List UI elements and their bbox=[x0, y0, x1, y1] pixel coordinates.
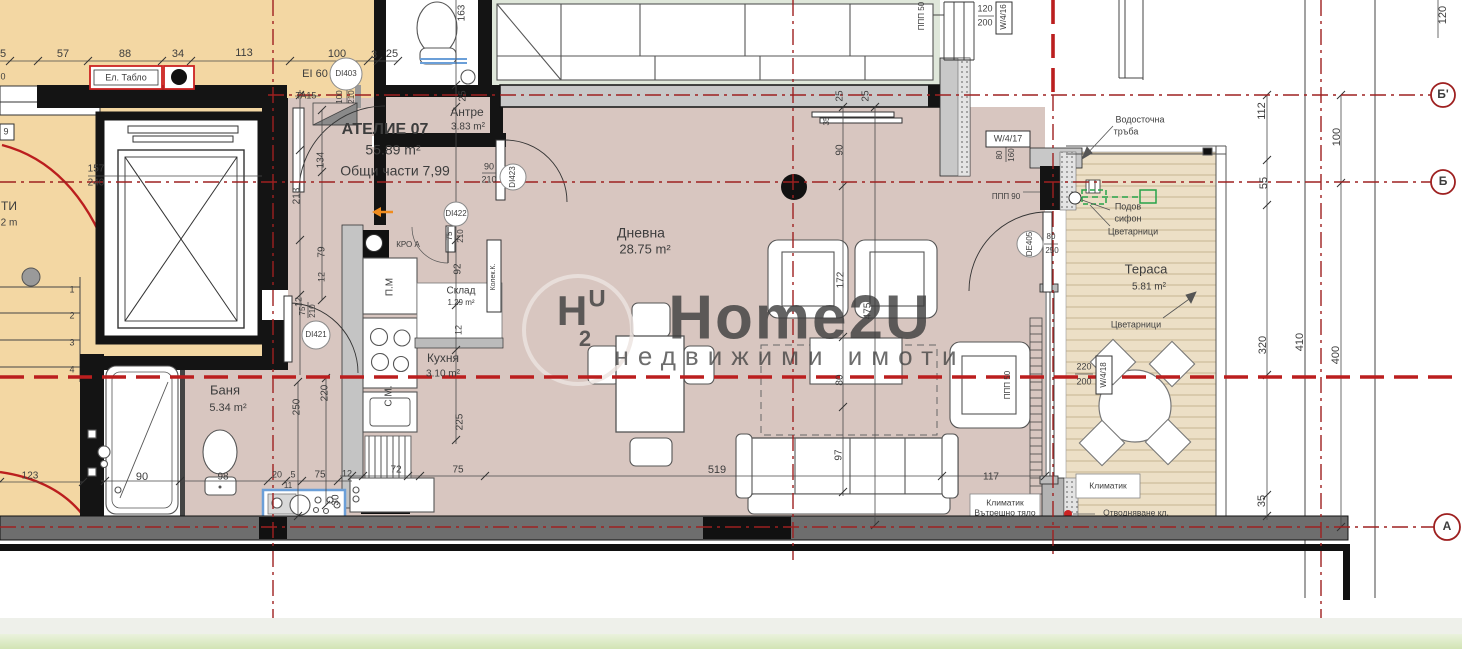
label-dim: 113 bbox=[235, 47, 253, 59]
label-dim: 240 bbox=[88, 178, 105, 189]
label-dim: 75 bbox=[314, 470, 326, 481]
dining-chair bbox=[630, 438, 672, 466]
label-dim: 210 bbox=[308, 304, 317, 318]
label-annotation: сифон bbox=[1115, 213, 1142, 223]
label-room-name: Тераса bbox=[1125, 261, 1168, 276]
label-annotation: Вътрешно тяло bbox=[974, 507, 1035, 517]
label-room-area: 1.29 m² bbox=[447, 298, 474, 307]
bathroom-cabinet bbox=[350, 478, 434, 512]
label-dim: 35 bbox=[1256, 495, 1268, 507]
label-dim: 75 bbox=[452, 465, 464, 476]
label-dim: 88 bbox=[119, 48, 131, 60]
label-annotation: ППП 90 bbox=[992, 192, 1021, 201]
label-annotation: КРО А bbox=[396, 240, 420, 249]
label-dim: 410 bbox=[1294, 333, 1306, 351]
label-dim: 320 bbox=[1257, 336, 1269, 354]
label-dim: 72 bbox=[390, 465, 402, 476]
label-dim: 25 bbox=[835, 90, 846, 102]
label-dim: 90 bbox=[835, 144, 846, 156]
label-dim: 5 bbox=[0, 48, 6, 60]
label-watermark: U bbox=[588, 285, 605, 312]
floor-plan-canvas: 5578834113100325016325252535901724758097… bbox=[0, 0, 1462, 649]
label-dim: 160 bbox=[1007, 148, 1016, 162]
label-door-tag: DI421 bbox=[305, 330, 327, 339]
label-dim: 220 bbox=[1076, 361, 1091, 371]
label-door-tag: DI403 bbox=[335, 69, 357, 78]
stair-post bbox=[22, 268, 40, 286]
label-annotation: ППП 50 bbox=[917, 1, 926, 30]
label-room-name: Антре bbox=[450, 105, 484, 119]
label-unit-common: Общи части 7,99 bbox=[340, 163, 450, 179]
label-dim: 117 bbox=[983, 472, 999, 483]
label-dim: 55 bbox=[1258, 177, 1270, 189]
label-annotation: С.М. bbox=[384, 385, 395, 406]
label-door-tag: DI423 bbox=[508, 166, 517, 188]
label-dim: 34 bbox=[172, 48, 184, 60]
label-annotation: ППП 50 bbox=[1003, 370, 1012, 399]
structural-column bbox=[781, 174, 807, 200]
label-annotation: Водосточна bbox=[1115, 114, 1164, 124]
label-axis-marker: Б bbox=[1439, 174, 1448, 188]
label-annotation: Цветарници bbox=[1111, 319, 1161, 329]
label-watermark: недвижими имоти bbox=[614, 341, 965, 371]
label-door-tag: TA15 bbox=[296, 90, 317, 100]
label-window-tag: W/4/16 bbox=[999, 4, 1008, 30]
label-dim: 12 bbox=[342, 468, 352, 478]
toilet bbox=[203, 430, 237, 495]
label-dim: 80 bbox=[835, 374, 846, 386]
wall-top-band bbox=[500, 85, 940, 107]
label-axis-marker: А bbox=[1443, 519, 1452, 533]
label-dim: 200 bbox=[1076, 376, 1091, 386]
label-dim: 4 bbox=[69, 364, 74, 374]
bottom-strip-green bbox=[0, 634, 1462, 649]
label-dim: 75 bbox=[298, 306, 307, 315]
label-dim: 210 bbox=[347, 90, 356, 104]
label-annotation: Отводняване кл. bbox=[1103, 507, 1169, 517]
label-annotation: Колек.К. bbox=[490, 264, 497, 291]
label-dim: 25 bbox=[386, 48, 398, 60]
label-dim: 92 bbox=[453, 263, 464, 275]
label-room-name: ТИ bbox=[1, 199, 17, 213]
label-dim: 213 bbox=[292, 187, 303, 204]
label-room-name: Кухня bbox=[427, 351, 459, 365]
label-dim: 120 bbox=[1437, 6, 1449, 24]
label-dim: 30 bbox=[331, 494, 342, 506]
bottom-strip-light bbox=[0, 618, 1462, 634]
label-dim: 90 bbox=[136, 471, 148, 483]
bottom-wall-band bbox=[0, 516, 1350, 600]
sofa bbox=[736, 434, 958, 514]
label-annotation: Цветарници bbox=[1108, 226, 1158, 236]
label-dim: 12 bbox=[316, 272, 326, 282]
label-dim: 210 bbox=[481, 174, 496, 184]
label-dim: 25 bbox=[458, 90, 469, 102]
label-dim: 100 bbox=[328, 48, 346, 60]
label-dim: 123 bbox=[22, 471, 39, 482]
panel-knob-icon bbox=[171, 69, 187, 85]
label-room-area: 28.75 m² bbox=[619, 241, 671, 256]
label-annotation: П.М bbox=[385, 278, 396, 296]
label-room-name: Баня bbox=[210, 382, 240, 397]
label-unit-name: АТЕЛИЕ 07 bbox=[342, 121, 429, 138]
label-door-tag: DE405 bbox=[1025, 231, 1034, 256]
label-room-area: 2 m bbox=[1, 218, 18, 229]
label-dim: 519 bbox=[708, 464, 726, 476]
label-dim: 112 bbox=[1256, 102, 1268, 120]
label-dim: 5 bbox=[290, 469, 295, 479]
dining-chair bbox=[632, 303, 670, 337]
label-dim: 3 bbox=[69, 337, 74, 347]
label-annotation: Климатик bbox=[986, 497, 1024, 507]
label-dim: 400 bbox=[1330, 346, 1342, 364]
label-dim: 75 bbox=[445, 231, 454, 240]
label-dim: 100 bbox=[335, 90, 344, 104]
label-dim: 80 bbox=[1047, 232, 1056, 241]
label-window-tag: W/4/17 bbox=[994, 133, 1023, 143]
label-annotation: Климатик bbox=[1089, 480, 1127, 490]
kitchen-partition bbox=[342, 225, 363, 508]
label-annotation: EI 60 bbox=[302, 68, 328, 80]
label-dim: 225 bbox=[455, 413, 466, 430]
label-dim: 100 bbox=[1331, 128, 1343, 146]
label-annotation: тръба bbox=[1114, 126, 1139, 136]
label-dim: 20 bbox=[272, 469, 282, 479]
label-dim: 57 bbox=[57, 48, 69, 60]
label-dim: 90 bbox=[484, 161, 494, 171]
label-dim: 200 bbox=[977, 17, 992, 27]
label-dim: 157 bbox=[88, 164, 105, 175]
label-dim: 11 bbox=[284, 481, 293, 490]
label-dim: 9 bbox=[3, 126, 8, 136]
label-door-tag: DI422 bbox=[445, 209, 467, 218]
label-room-name: Склад bbox=[447, 286, 476, 297]
label-room-area: 5.34 m² bbox=[209, 402, 247, 414]
label-dim: 79 bbox=[317, 246, 328, 258]
label-room-area: 3.83 m² bbox=[451, 122, 486, 133]
label-annotation: Ел. Табло bbox=[105, 72, 146, 82]
label-room-name: Дневна bbox=[617, 225, 665, 241]
label-annotation: Подов bbox=[1115, 201, 1142, 211]
neighbor-sofa bbox=[497, 4, 933, 80]
label-dim: 210 bbox=[456, 229, 465, 243]
label-dim: 12 bbox=[293, 297, 303, 307]
label-dim: 97 bbox=[834, 449, 845, 461]
label-dim: 220 bbox=[320, 384, 331, 401]
elevator bbox=[100, 116, 262, 340]
label-window-tag: W/4/18 bbox=[1099, 362, 1108, 388]
label-dim: 3 bbox=[371, 49, 377, 61]
label-room-area: 3.10 m² bbox=[426, 369, 461, 380]
label-unit-area: 55.89 m² bbox=[365, 142, 421, 158]
label-dim: 1 bbox=[69, 284, 74, 294]
label-dim: 12 bbox=[453, 325, 463, 335]
label-dim: 2 bbox=[69, 310, 74, 320]
label-dim: 25 bbox=[861, 90, 872, 102]
label-dim: 120 bbox=[977, 3, 992, 13]
label-room-area: 5.81 m² bbox=[1132, 282, 1167, 293]
label-dim: 250 bbox=[1045, 246, 1059, 255]
label-axis-marker: Б' bbox=[1437, 87, 1449, 101]
label-dim: 163 bbox=[457, 4, 468, 21]
label-dim: 35 bbox=[822, 116, 831, 125]
label-dim: 134 bbox=[316, 151, 327, 168]
label-watermark: 2 bbox=[579, 326, 591, 351]
label-dim: 98 bbox=[217, 472, 229, 483]
label-dim: 250 bbox=[292, 398, 303, 415]
label-dim: 0 bbox=[0, 71, 5, 81]
label-dim: 80 bbox=[995, 150, 1004, 159]
